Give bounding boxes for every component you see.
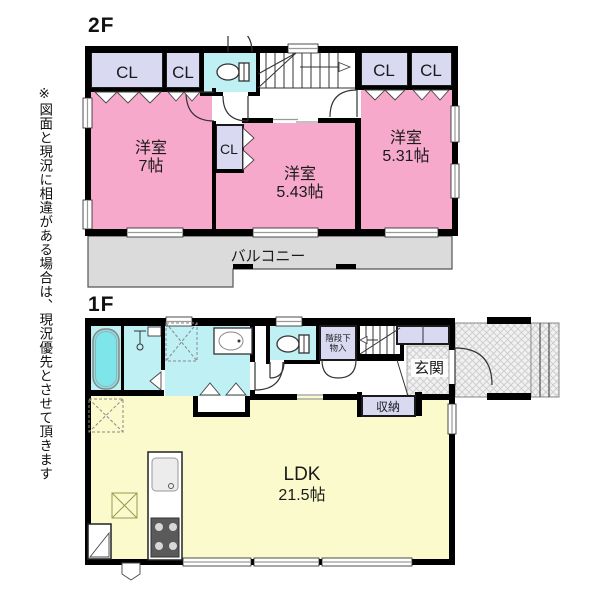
under-stairs-label-2: 物入 bbox=[329, 343, 347, 353]
outdoor-step bbox=[122, 563, 140, 580]
under-stairs-label-1: 階段下 bbox=[325, 333, 351, 343]
disclaimer-note: ※図面と現況に相違がある場合は、現況優先とさせて頂きます bbox=[36, 86, 52, 486]
floor-plan-2f: CL CL CL CL CL 洋室 7帖 洋室 5.43帖 洋室 5.31帖 バ… bbox=[78, 36, 478, 296]
bedroom-left-name: 洋室 bbox=[135, 139, 167, 157]
closet-2-label: CL bbox=[172, 63, 194, 82]
bedroom-mid-name: 洋室 bbox=[284, 165, 316, 183]
storage-label: 収納 bbox=[376, 400, 400, 414]
vanity-sink bbox=[214, 328, 252, 354]
toilet-icon-1f bbox=[277, 335, 309, 353]
porch bbox=[455, 317, 559, 400]
bedroom-right-name: 洋室 bbox=[390, 129, 422, 147]
stairs-up-arrow bbox=[339, 63, 350, 72]
kitchen-counter bbox=[148, 452, 182, 560]
ldk-size-label: 21.5帖 bbox=[278, 486, 325, 504]
ldk-floor bbox=[91, 396, 449, 561]
closet-4-label: CL bbox=[420, 61, 442, 80]
washroom-alcove bbox=[193, 396, 250, 417]
toilet-icon-2f bbox=[217, 63, 249, 81]
bedroom-left-size: 7帖 bbox=[139, 157, 164, 175]
porch-steps bbox=[531, 323, 559, 397]
stairs-2f bbox=[258, 53, 350, 88]
kitchen-sink bbox=[152, 458, 178, 491]
balcony-label: バルコニー bbox=[231, 248, 306, 265]
floor-2-label: 2F bbox=[88, 14, 115, 38]
floor-plan-1f: 階段下 物入 玄関 収納 LDK 21.5帖 bbox=[78, 312, 578, 588]
bedroom-right-size: 5.31帖 bbox=[382, 147, 429, 165]
entrance-label: 玄関 bbox=[414, 360, 444, 377]
stairs-1f bbox=[360, 326, 400, 354]
bedroom-mid-size: 5.43帖 bbox=[276, 183, 323, 201]
ldk-name-label: LDK bbox=[284, 464, 321, 485]
closet-1-label: CL bbox=[116, 63, 138, 82]
bathtub bbox=[93, 329, 119, 389]
closet-mid-label: CL bbox=[220, 141, 238, 157]
closet-3-label: CL bbox=[373, 61, 395, 80]
